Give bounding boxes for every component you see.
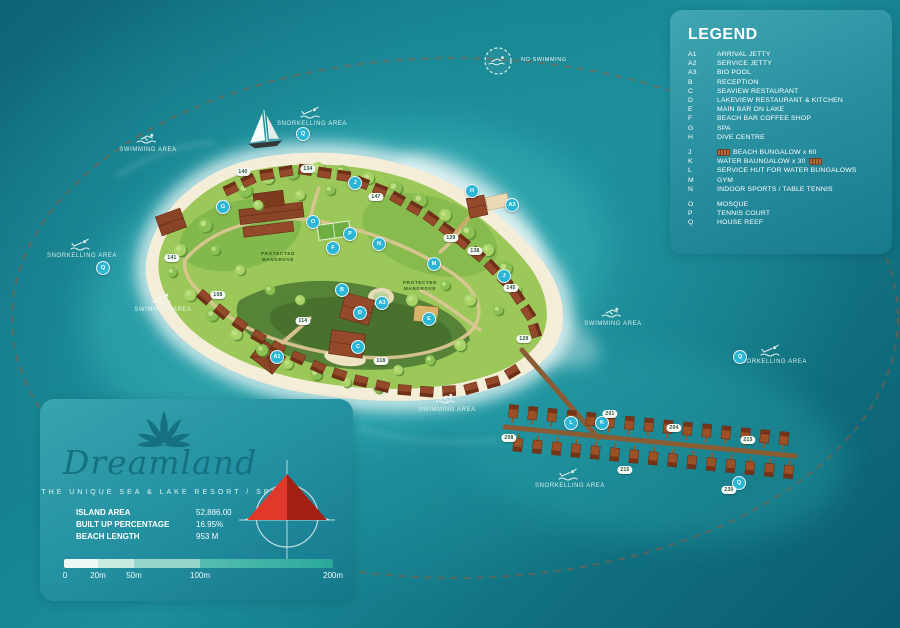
area-label-text: SWIMMING AREA: [418, 407, 475, 413]
legend-label: SPA: [717, 125, 731, 132]
palm-highlight: [176, 246, 181, 251]
resort-info-panel: Dreamland THE UNIQUE SEA & LAKE RESORT /…: [40, 399, 353, 601]
bungalow-number-pill: 204: [666, 424, 681, 432]
legend-label: ARRIVAL JETTY: [717, 51, 771, 58]
area-label-text: SWIMMING AREA: [134, 307, 191, 313]
marker-q: Q: [733, 350, 747, 364]
swimmer-icon: [434, 392, 460, 406]
scale-tick: 0: [63, 571, 67, 580]
legend-item-l: LSERVICE HUT FOR WATER BUNGALOWS: [688, 166, 882, 175]
legend-item-f: FBEACH BAR COFFEE SHOP: [688, 114, 882, 123]
marker-c: C: [351, 340, 365, 354]
legend-label: LAKEVIEW RESTAURANT & KITCHEN: [717, 97, 843, 104]
stat-row: BEACH LENGTH953 M: [76, 531, 232, 543]
area-label-text: SWIMMING AREA: [119, 147, 176, 153]
legend-key: J: [688, 149, 717, 156]
palm-highlight: [463, 227, 469, 233]
legend-label: DIVE CENTRE: [717, 134, 765, 141]
legend-key: D: [688, 97, 717, 104]
mangrove-label-line: MANGROVE: [403, 286, 437, 292]
legend-key: N: [688, 186, 717, 193]
beach-bungalow-icon: [398, 384, 412, 395]
legend-label: BEACH BUNGALOW x 60: [733, 149, 817, 156]
island-stats: ISLAND AREA52,886.00BUILT UP PERCENTAGE1…: [76, 507, 232, 543]
bungalow-number-pill: 215: [617, 466, 632, 474]
bungalow-number-pill: 138: [467, 247, 482, 255]
marker-q: Q: [96, 261, 110, 275]
marker-e: E: [422, 312, 436, 326]
swimmer-icon: [150, 292, 176, 306]
scale-segment: [200, 559, 333, 568]
bungalow-number-pill: 140: [235, 168, 250, 176]
marker-h: H: [465, 184, 479, 198]
legend-item-a2: A2SERVICE JETTY: [688, 59, 882, 68]
marker-d: D: [353, 306, 367, 320]
legend-key: Q: [688, 219, 717, 226]
scale-tick: 100m: [190, 571, 210, 580]
legend-rows: A1ARRIVAL JETTYA2SERVICE JETTYA3BIO POOL…: [688, 50, 882, 227]
marker-j: J: [497, 269, 511, 283]
bungalow-number-pill: 208: [501, 434, 516, 442]
marker-a3: A3: [375, 296, 389, 310]
palm-highlight: [255, 202, 259, 206]
marker-o: O: [306, 215, 320, 229]
area-label-text: SNORKELLING AREA: [277, 121, 347, 127]
mangrove-label-line: PROTECTED: [403, 280, 437, 286]
bungalow-number-pill: 147: [368, 193, 383, 201]
legend-item-n: NINDOOR SPORTS / TABLE TENNIS: [688, 185, 882, 194]
beach-bungalow-icon: [317, 167, 331, 179]
palm-highlight: [232, 330, 237, 335]
legend-key: K: [688, 158, 717, 165]
area-label-text: SWIMMING AREA: [584, 321, 641, 327]
palm-highlight: [208, 311, 213, 316]
stat-row: BUILT UP PERCENTAGE16.95%: [76, 519, 232, 531]
stat-value: 52,886.00: [196, 507, 232, 519]
swimming-area-label: SWIMMING AREA: [134, 292, 191, 313]
snorkelling-area-label: SNORKELLING AREA: [737, 344, 807, 365]
water-bungalow-icon: [809, 158, 822, 165]
marker-l: L: [564, 416, 578, 430]
stat-label: BEACH LENGTH: [76, 531, 196, 543]
stat-value: 16.95%: [196, 519, 223, 531]
legend-key: A3: [688, 69, 717, 76]
beach-bungalow-icon: [279, 165, 293, 177]
legend-key: B: [688, 79, 717, 86]
legend-key: C: [688, 88, 717, 95]
palm-highlight: [395, 367, 399, 371]
swimming-area-label: SWIMMING AREA: [584, 306, 641, 327]
palm-highlight: [258, 346, 263, 351]
lotus-logo-icon: [132, 407, 196, 447]
snorkelling-area-label: SNORKELLING AREA: [277, 106, 347, 127]
legend-item-g: GSPA: [688, 124, 882, 133]
palm-highlight: [390, 183, 396, 189]
legend-label: RECEPTION: [717, 79, 758, 86]
legend-label: INDOOR SPORTS / TABLE TENNIS: [717, 186, 833, 193]
legend-label: BIO POOL: [717, 69, 751, 76]
legend-label: TENNIS COURT: [717, 210, 770, 217]
marker-g: G: [216, 200, 230, 214]
snorkeller-icon: [299, 106, 325, 120]
bungalow-number-pill: 118: [374, 357, 389, 365]
legend-item-a1: A1ARRIVAL JETTY: [688, 50, 882, 59]
palm-highlight: [267, 287, 271, 291]
legend-panel: LEGEND A1ARRIVAL JETTYA2SERVICE JETTYA3B…: [670, 10, 892, 254]
legend-label: MAIN BAR ON LAKE: [717, 106, 784, 113]
snorkeller-icon: [759, 344, 785, 358]
bungalow-number-pill: 230: [721, 486, 736, 494]
bungalow-number-pill: 201: [602, 410, 617, 418]
no-swimming-icon: [485, 48, 511, 74]
bungalow-number-pill: 145: [503, 284, 518, 292]
bungalow-number-pill: 114: [296, 317, 311, 325]
palm-highlight: [327, 187, 331, 191]
no-swimming-label: NO SWIMMING: [521, 57, 567, 63]
snorkeller-icon: [69, 238, 95, 252]
palm-highlight: [427, 357, 431, 361]
beach-bungalow-icon: [717, 149, 730, 156]
palm-highlight: [484, 246, 489, 251]
marker-a1: A1: [270, 350, 284, 364]
legend-key: A1: [688, 51, 717, 58]
legend-key: H: [688, 134, 717, 141]
legend-item-b: BRECEPTION: [688, 78, 882, 87]
legend-key: P: [688, 210, 717, 217]
mangrove-label-line: MANGROVE: [261, 257, 295, 263]
legend-item-h: HDIVE CENTRE: [688, 133, 882, 142]
palm-highlight: [285, 361, 289, 365]
scale-segment: [64, 559, 98, 568]
scale-segment: [134, 559, 200, 568]
scale-segment: [98, 559, 134, 568]
legend-key: A2: [688, 60, 717, 67]
protected-mangrove-label: PROTECTEDMANGROVE: [261, 251, 295, 263]
marker-m: M: [427, 257, 441, 271]
snorkelling-area-label: SNORKELLING AREA: [535, 468, 605, 489]
legend-key: M: [688, 177, 717, 184]
area-label-text: SNORKELLING AREA: [535, 483, 605, 489]
legend-title: LEGEND: [688, 26, 758, 44]
area-label-text: SNORKELLING AREA: [737, 359, 807, 365]
palm-highlight: [495, 307, 499, 311]
legend-item-a3: A3BIO POOL: [688, 68, 882, 77]
palm-highlight: [297, 297, 301, 301]
legend-item-p: PTENNIS COURT: [688, 209, 882, 218]
scale-tick: 200m: [323, 571, 343, 580]
bungalow-number-pill: 141: [164, 254, 179, 262]
palm-highlight: [212, 247, 216, 251]
snorkeller-icon: [557, 468, 583, 482]
legend-label: BEACH BAR COFFEE SHOP: [717, 115, 811, 122]
legend-item-k: KWATER BAUNGALOW x 30: [688, 157, 882, 166]
palm-highlight: [441, 211, 446, 216]
legend-label: HOUSE REEF: [717, 219, 763, 226]
legend-key: G: [688, 125, 717, 132]
snorkelling-area-label: SNORKELLING AREA: [47, 238, 117, 259]
mangrove-label-line: PROTECTED: [261, 251, 295, 257]
palm-highlight: [415, 195, 421, 201]
swimming-area-label: SWIMMING AREA: [418, 392, 475, 413]
palm-highlight: [408, 296, 413, 301]
marker-k: K: [595, 416, 609, 430]
scale-tick: 20m: [90, 571, 106, 580]
legend-label: SERVICE HUT FOR WATER BUNGALOWS: [717, 167, 857, 174]
bungalow-number-pill: 129: [516, 335, 531, 343]
marker-a2: A2: [505, 198, 519, 212]
stat-label: ISLAND AREA: [76, 507, 196, 519]
resort-map: SWIMMING AREASNORKELLING AREASNORKELLING…: [0, 0, 900, 628]
legend-item-c: CSEAVIEW RESTAURANT: [688, 87, 882, 96]
legend-key: F: [688, 115, 717, 122]
stat-label: BUILT UP PERCENTAGE: [76, 519, 196, 531]
legend-label: MOSQUE: [717, 201, 748, 208]
legend-label: WATER BAUNGALOW x 30: [717, 158, 806, 165]
legend-key: O: [688, 201, 717, 208]
marker-b: B: [335, 283, 349, 297]
scale-tick: 50m: [126, 571, 142, 580]
swimming-area-label: SWIMMING AREA: [119, 132, 176, 153]
swimmer-icon: [135, 132, 161, 146]
legend-item-e: EMAIN BAR ON LAKE: [688, 105, 882, 114]
palm-highlight: [200, 220, 206, 226]
legend-item-j: JBEACH BUNGALOW x 60: [688, 148, 882, 157]
palm-highlight: [237, 267, 241, 271]
bungalow-number-pill: 139: [443, 234, 458, 242]
bungalow-number-pill: 134: [300, 165, 315, 173]
palm-highlight: [297, 192, 301, 196]
marker-f: F: [326, 241, 340, 255]
palm-highlight: [466, 296, 471, 301]
legend-key: L: [688, 167, 717, 174]
marker-j: J: [348, 176, 362, 190]
marker-n: N: [372, 237, 386, 251]
swimmer-icon: [600, 306, 626, 320]
beach-bungalow-icon: [260, 168, 274, 180]
stat-value: 953 M: [196, 531, 218, 543]
scale-bar: [64, 559, 333, 568]
marker-q: Q: [296, 127, 310, 141]
protected-mangrove-label: PROTECTEDMANGROVE: [403, 280, 437, 292]
palm-highlight: [456, 341, 461, 346]
palm-highlight: [442, 282, 446, 286]
legend-item-q: QHOUSE REEF: [688, 218, 882, 227]
bungalow-number-pill: 213: [740, 436, 755, 444]
bungalow-number-pill: 108: [210, 291, 225, 299]
legend-item-m: MGYM: [688, 175, 882, 184]
legend-item-d: DLAKEVIEW RESTAURANT & KITCHEN: [688, 96, 882, 105]
legend-label: SERVICE JETTY: [717, 60, 772, 67]
legend-item-o: OMOSQUE: [688, 200, 882, 209]
legend-key: E: [688, 106, 717, 113]
legend-label: GYM: [717, 177, 733, 184]
palm-highlight: [169, 269, 173, 273]
legend-label: SEAVIEW RESTAURANT: [717, 88, 799, 95]
stat-row: ISLAND AREA52,886.00: [76, 507, 232, 519]
area-label-text: SNORKELLING AREA: [47, 253, 117, 259]
compass-rose-icon: [232, 454, 342, 574]
marker-p: P: [343, 227, 357, 241]
scale-tick-labels: 020m50m100m200m: [40, 571, 353, 583]
